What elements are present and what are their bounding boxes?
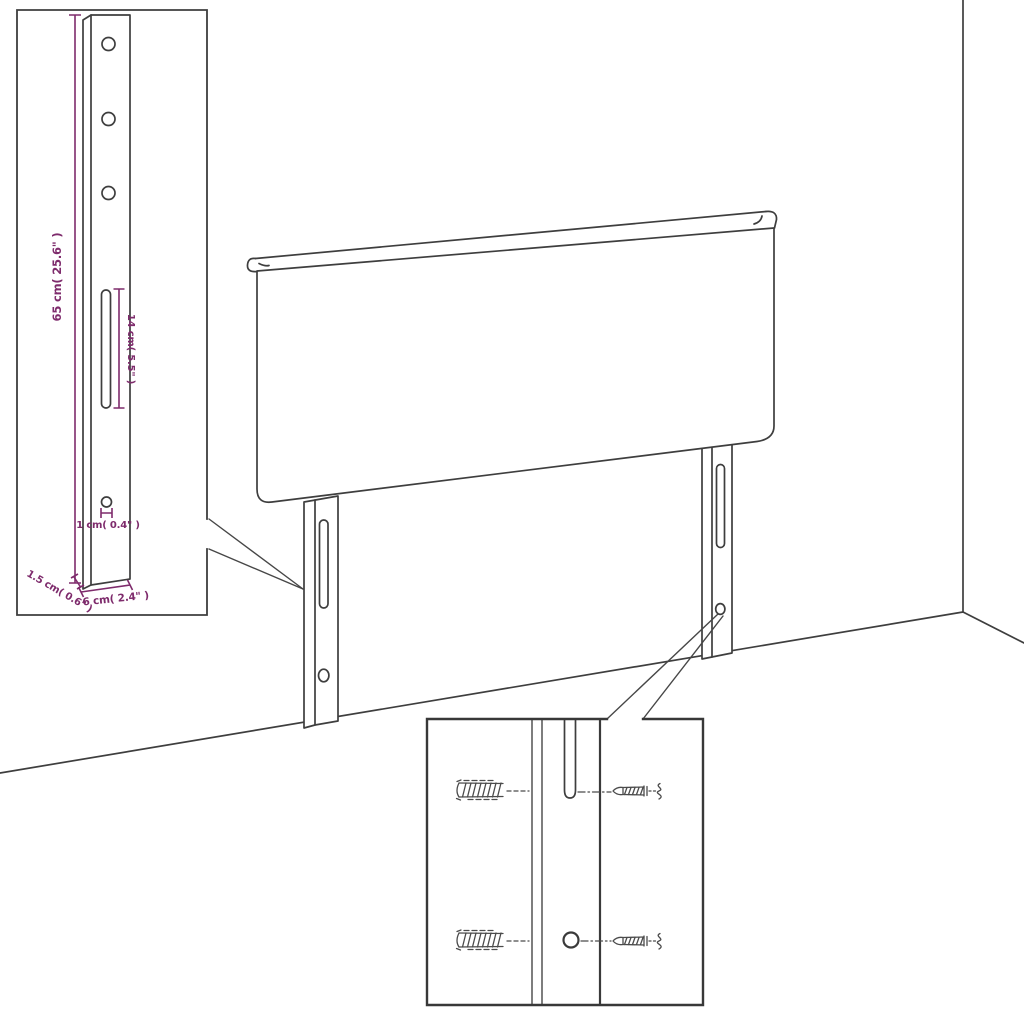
- left-leg-slot: [320, 520, 329, 608]
- callout-line: [209, 549, 303, 589]
- floor-line-right: [963, 612, 1024, 643]
- callout-line: [643, 616, 723, 719]
- callout-line: [607, 614, 718, 719]
- callout-line: [209, 519, 303, 589]
- roll-right-cap: [766, 211, 777, 228]
- headboard-panel: [247, 211, 776, 502]
- bracket-slot: [102, 290, 111, 408]
- dimension-label-hole: 1 cm( 0.4" ): [76, 520, 139, 531]
- roll-right-hook: [754, 216, 762, 224]
- right-leg-slot: [717, 465, 725, 548]
- bracket-detail-inset: 65 cm( 25.6" ) 14 cm( 5.5" ) 1 cm( 0.4" …: [17, 10, 207, 615]
- mounting-detail-inset: [427, 719, 703, 1005]
- bracket-hole-1: [102, 38, 115, 51]
- bracket-drawing: [83, 15, 130, 589]
- bracket-hole-2: [102, 113, 115, 126]
- callout-left-leg-to-inset: [209, 519, 303, 589]
- panel-face: [257, 228, 774, 502]
- left-leg-hole: [319, 669, 329, 682]
- headboard-right-leg: [702, 444, 732, 659]
- right-leg-hole: [716, 604, 725, 615]
- bracket-hole-3: [102, 187, 115, 200]
- assembly-diagram-canvas: 65 cm( 25.6" ) 14 cm( 5.5" ) 1 cm( 0.4" …: [0, 0, 1024, 1024]
- dimension-label-height: 65 cm( 25.6" ): [50, 233, 64, 322]
- headboard-left-leg: [304, 496, 338, 728]
- bracket-small-hole: [102, 497, 112, 507]
- assembly-diagram: 65 cm( 25.6" ) 14 cm( 5.5" ) 1 cm( 0.4" …: [0, 0, 1024, 1024]
- roll-left-hook: [259, 264, 269, 266]
- dimension-label-slot: 14 cm( 5.5" ): [125, 314, 136, 384]
- roll-left-cap: [247, 258, 257, 271]
